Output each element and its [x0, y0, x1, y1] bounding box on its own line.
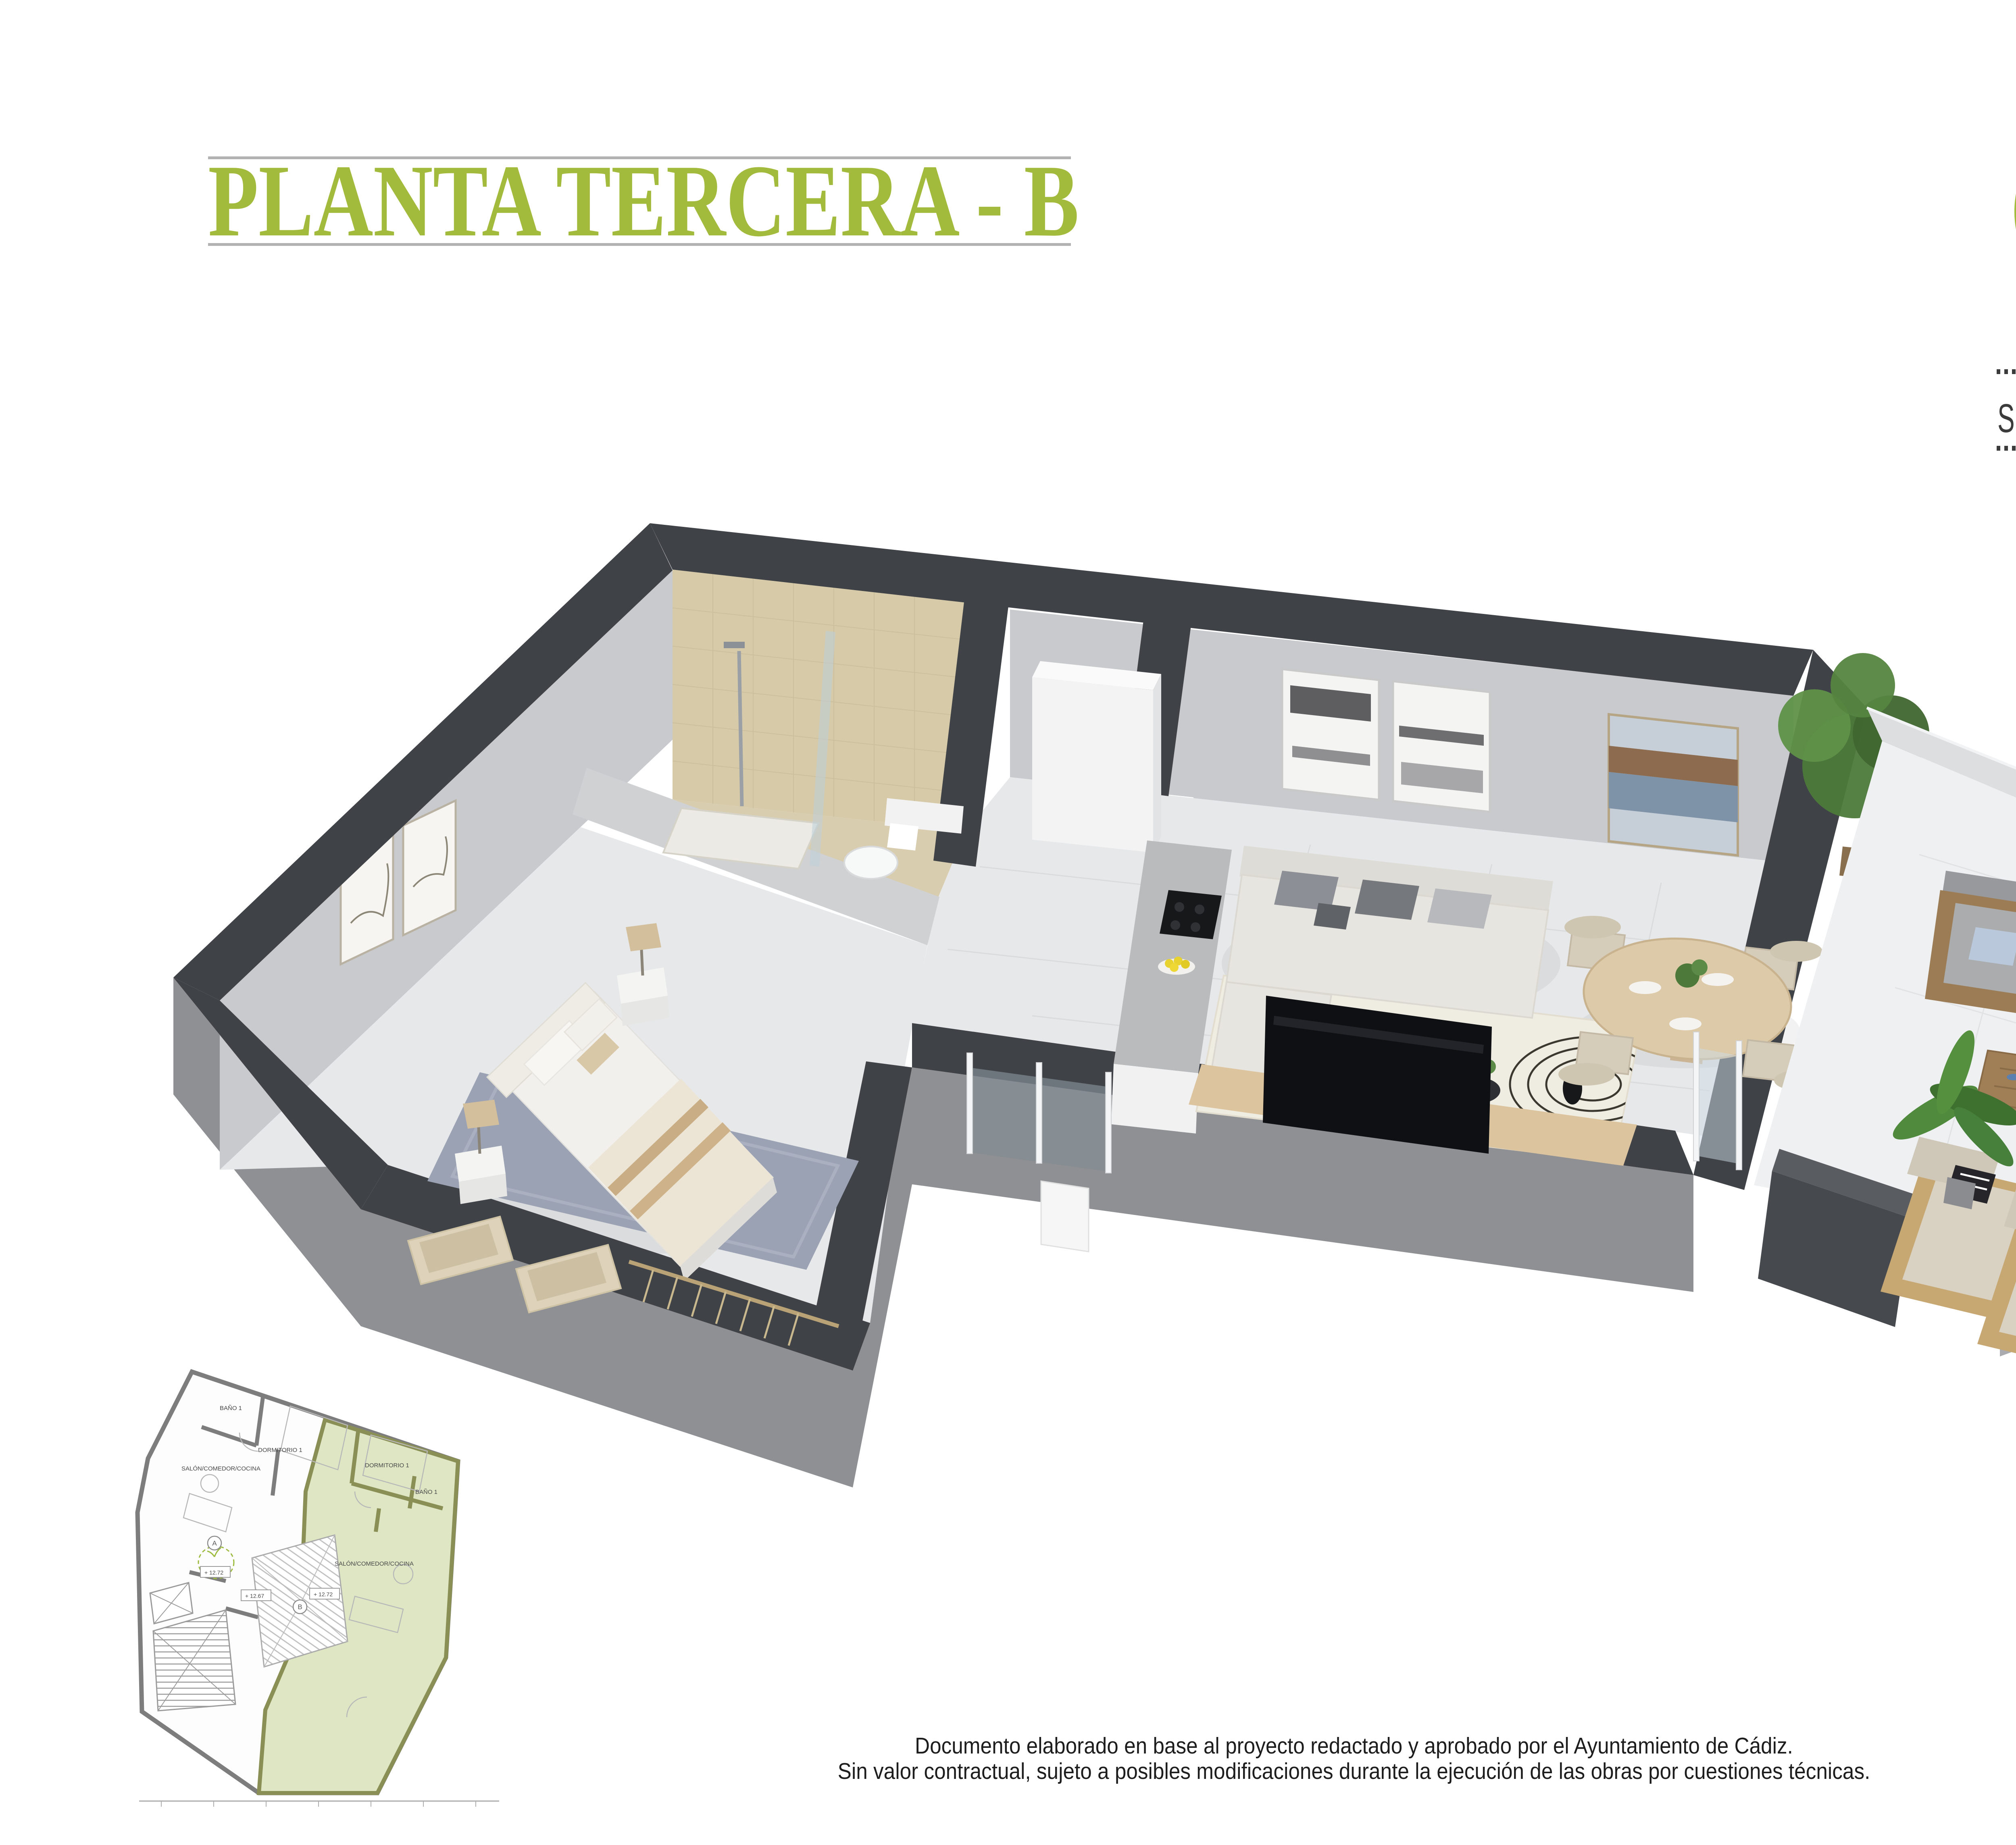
unit-a-marker: A: [208, 1536, 221, 1550]
logo-circle: [2013, 109, 2016, 314]
dotted-rule-top: [1997, 369, 2016, 374]
title-block: PLANTA TERCERA - B: [208, 156, 1071, 246]
built-area-text: SUPERFICIE CONSTRUIDA CON ZZCC: 70,14 M2: [1997, 381, 2016, 440]
table-lamp: [463, 1100, 499, 1129]
brochure-page: BAÑO 1 DORMITORIO 1 SALÓN/COMEDOR/COCINA…: [0, 0, 2016, 1845]
level-badge-b: + 12.72: [310, 1588, 339, 1599]
label-bedroom-b: DORMITORIO 1: [365, 1462, 409, 1469]
floorplan-3d-render: [173, 523, 2016, 1487]
cooktop: [1160, 890, 1222, 939]
brand-logo: CRISTOBAL COLÓN 24: [2013, 109, 2016, 367]
svg-text:+ 12.72: + 12.72: [314, 1591, 333, 1597]
svg-text:+ 12.72: + 12.72: [204, 1569, 223, 1576]
table-lamp: [626, 923, 661, 951]
svg-text:B: B: [298, 1603, 302, 1611]
disclaimer-line1: Documento elaborado en base al proyecto …: [135, 1733, 2016, 1759]
label-living-a: SALÓN/COMEDOR/COCINA: [181, 1465, 260, 1472]
level-badge-courtyard: + 12.67: [241, 1590, 271, 1601]
page-title: PLANTA TERCERA - B: [208, 162, 898, 240]
svg-text:+ 12.67: + 12.67: [245, 1593, 264, 1599]
unit-b-marker: B: [293, 1600, 307, 1614]
tall-cabinet: [1032, 661, 1161, 853]
label-bedroom-a: DORMITORIO 1: [258, 1447, 302, 1454]
area-label: SUPERFICIE CONSTRUIDA CON ZZCC:: [1997, 396, 2016, 441]
label-bath-a: BAÑO 1: [220, 1405, 242, 1412]
toilet: [844, 847, 898, 879]
floorplan-scene: BAÑO 1 DORMITORIO 1 SALÓN/COMEDOR/COCINA…: [0, 0, 2016, 1845]
svg-text:A: A: [212, 1539, 217, 1547]
disclaimer-line2: Sin valor contractual, sujeto a posibles…: [135, 1759, 2016, 1784]
ground-line: [139, 1801, 499, 1807]
label-living-b: SALÓN/COMEDOR/COCINA: [335, 1560, 414, 1567]
label-bath-b: BAÑO 1: [415, 1489, 437, 1496]
footer-disclaimer: Documento elaborado en base al proyecto …: [0, 1733, 2016, 1784]
area-banner: SUPERFICIE CONSTRUIDA CON ZZCC: 70,14 M2: [1997, 369, 2016, 451]
level-badge-a: + 12.72: [200, 1566, 230, 1577]
shower-head: [724, 642, 745, 648]
toilet-tank: [887, 823, 918, 851]
entry-door: [1041, 1181, 1089, 1252]
dotted-rule-bottom: [1997, 446, 2016, 451]
